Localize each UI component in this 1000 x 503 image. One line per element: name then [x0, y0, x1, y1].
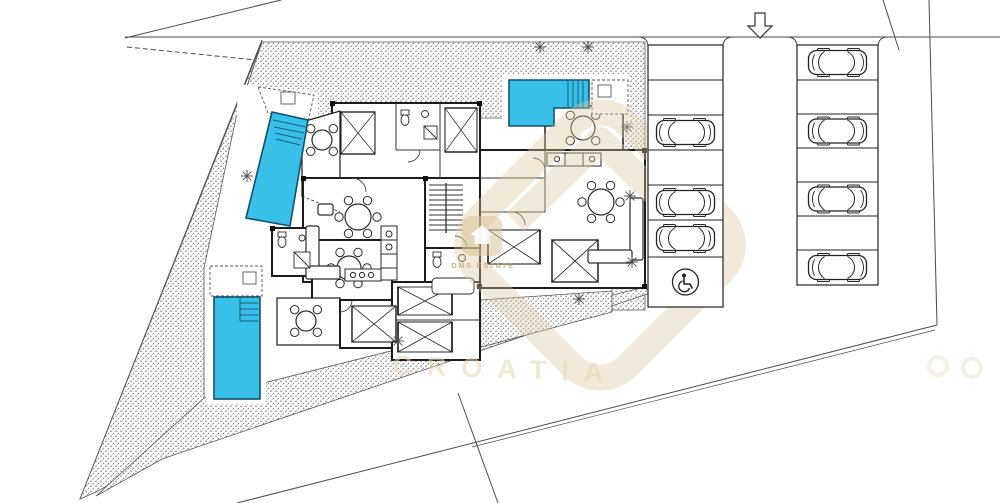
parking-stall-car — [809, 185, 867, 213]
pool-bottom-left — [214, 297, 260, 399]
tree-icon — [626, 256, 638, 268]
parking-column-right — [797, 45, 878, 285]
down-arrow-icon — [748, 13, 772, 38]
tree-icon — [241, 170, 253, 182]
parking-stall-accessible — [673, 269, 699, 295]
parking-stall-car — [809, 117, 867, 145]
tree-icon — [573, 293, 585, 305]
car-top-view-icon — [657, 189, 715, 217]
tree-icon — [582, 41, 594, 53]
parking-stall-car — [809, 254, 867, 282]
tree-icon — [624, 190, 636, 202]
car-top-view-icon — [809, 49, 867, 77]
wheelchair-icon — [673, 269, 699, 295]
parking-column-left — [648, 45, 723, 307]
tree-icon — [534, 41, 546, 53]
parking-stall-car — [657, 119, 715, 147]
double-bed — [352, 306, 396, 342]
parking-stall-car — [657, 225, 715, 253]
parking-area — [638, 37, 888, 307]
watermark-country-text: CROATIA — [392, 350, 619, 388]
car-top-view-icon — [657, 119, 715, 147]
double-bed — [445, 108, 477, 152]
car-top-view-icon — [657, 225, 715, 253]
car-top-view-icon — [809, 117, 867, 145]
car-top-view-icon — [809, 254, 867, 282]
double-bed — [341, 112, 375, 154]
site-plan-drawing: DMS ESTATE CROATIA — [0, 0, 1000, 503]
parking-stall-car — [809, 49, 867, 77]
site-plan-page: DMS ESTATE CROATIA — [0, 0, 1000, 503]
car-top-view-icon — [809, 185, 867, 213]
parking-stall-car — [657, 189, 715, 217]
tree-icon — [392, 335, 404, 347]
watermark-brand-text: DMS ESTATE — [451, 261, 514, 270]
double-bed — [398, 322, 452, 352]
